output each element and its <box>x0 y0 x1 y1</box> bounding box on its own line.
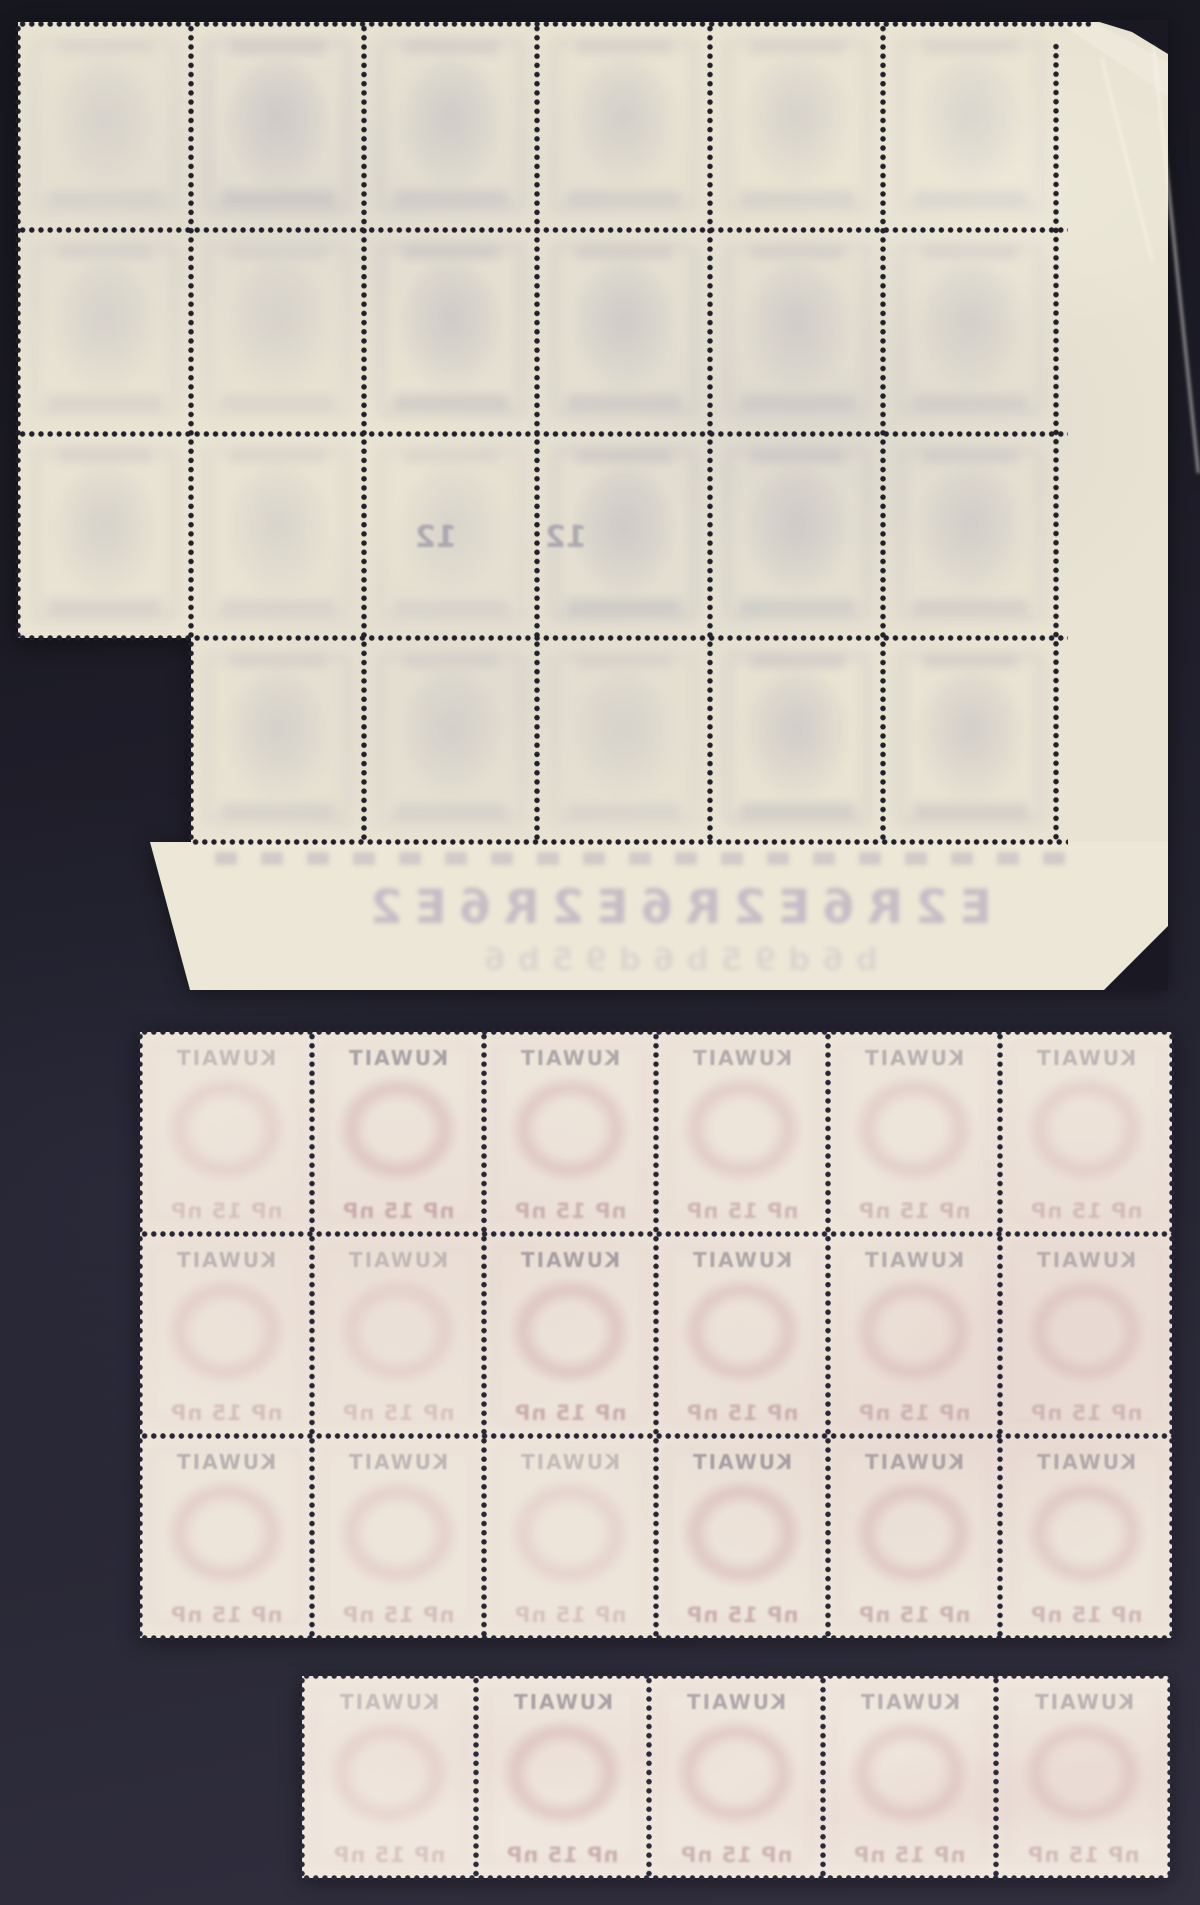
country-overprint-showthrough: KUWAIT <box>476 1690 650 1714</box>
stamp-cell: KUWAITnP 15 nP <box>302 1676 476 1878</box>
stamp-cell: KUWAITnP 15 nP <box>996 1676 1170 1878</box>
perforation-column <box>1165 1676 1175 1878</box>
country-overprint-showthrough: KUWAIT <box>996 1690 1170 1714</box>
perforation-row <box>302 1671 1170 1681</box>
ghost-portrait-oval <box>849 1720 971 1826</box>
value-overprint-showthrough: nP 15 nP <box>996 1843 1170 1867</box>
perforation-row <box>302 1873 1170 1883</box>
country-overprint-text: KUWAIT <box>1033 1690 1134 1714</box>
ghost-portrait-oval <box>328 1720 450 1826</box>
country-overprint-text: KUWAIT <box>512 1690 613 1714</box>
value-overprint-text: nP 15 nP <box>680 1843 793 1867</box>
country-overprint-text: KUWAIT <box>859 1690 960 1714</box>
photo-canvas: 1212E2R6E2R6E2R6E2b6d95b6d95b6KUWAITnP 1… <box>0 0 1200 1905</box>
perforation-column <box>471 1676 481 1878</box>
value-overprint-showthrough: nP 15 nP <box>476 1843 650 1867</box>
stamp-sheet-bottom-strip: KUWAITnP 15 nPKUWAITnP 15 nPKUWAITnP 15 … <box>0 0 1200 1905</box>
value-overprint-showthrough: nP 15 nP <box>302 1843 476 1867</box>
country-overprint-text: KUWAIT <box>338 1690 439 1714</box>
value-overprint-showthrough: nP 15 nP <box>823 1843 997 1867</box>
perforation-column <box>644 1676 654 1878</box>
country-overprint-text: KUWAIT <box>685 1690 786 1714</box>
perforation-column <box>297 1676 307 1878</box>
perforation-column <box>818 1676 828 1878</box>
value-overprint-text: nP 15 nP <box>1027 1843 1140 1867</box>
value-overprint-text: nP 15 nP <box>506 1843 619 1867</box>
value-overprint-text: nP 15 nP <box>333 1843 446 1867</box>
value-overprint-showthrough: nP 15 nP <box>649 1843 823 1867</box>
value-overprint-text: nP 15 nP <box>853 1843 966 1867</box>
country-overprint-showthrough: KUWAIT <box>302 1690 476 1714</box>
ghost-portrait-oval <box>502 1720 624 1826</box>
perforation-column <box>991 1676 1001 1878</box>
stamp-cell: KUWAITnP 15 nP <box>476 1676 650 1878</box>
country-overprint-showthrough: KUWAIT <box>649 1690 823 1714</box>
stamp-cell: KUWAITnP 15 nP <box>649 1676 823 1878</box>
ghost-portrait-oval <box>675 1720 797 1826</box>
ghost-portrait-oval <box>1022 1720 1144 1826</box>
stamp-cell: KUWAITnP 15 nP <box>823 1676 997 1878</box>
country-overprint-showthrough: KUWAIT <box>823 1690 997 1714</box>
